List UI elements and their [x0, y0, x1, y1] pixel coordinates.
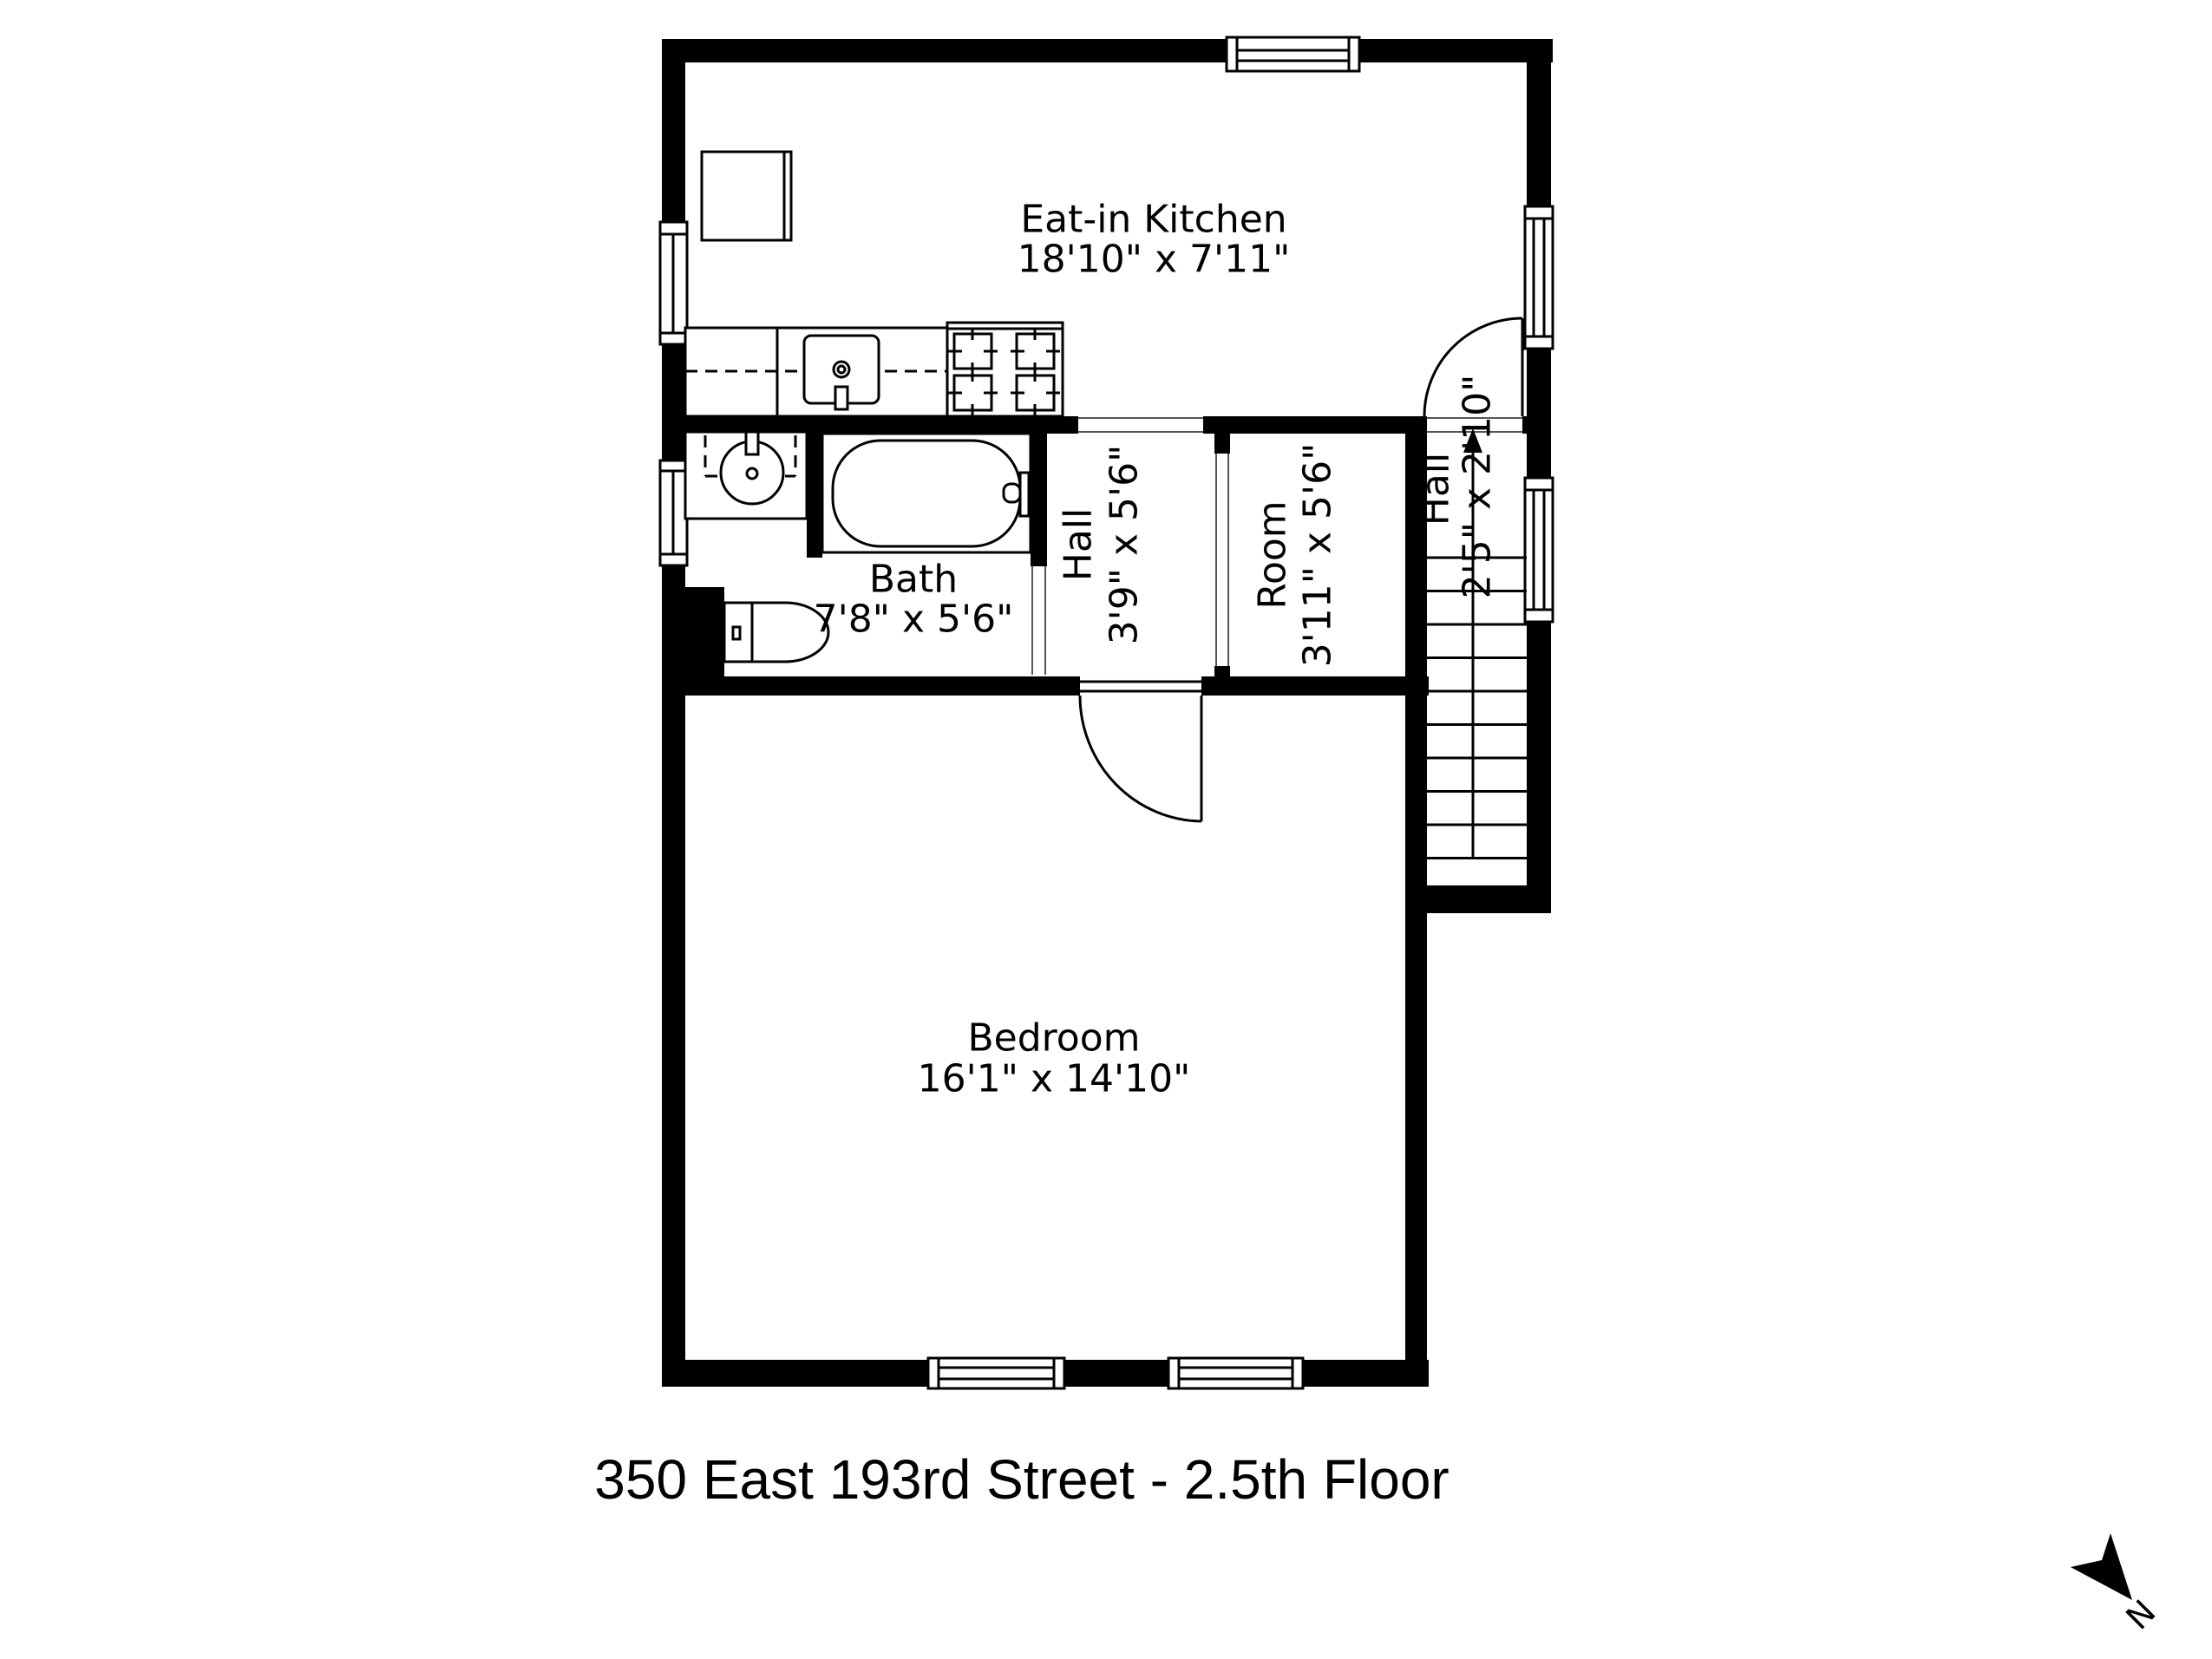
- entry-hall-name: Hall: [1414, 453, 1458, 526]
- window-kitchen-left: [660, 222, 687, 344]
- north-arrow: N: [2071, 1533, 2163, 1637]
- label-bath: Bath 7'8" x 5'6": [814, 558, 1014, 642]
- hall-dims: 3'9" x 5'6": [1103, 445, 1147, 645]
- kitchen-dims: 18'10" x 7'11": [1018, 238, 1291, 282]
- kitchen-fixtures: [685, 152, 1063, 416]
- floor-plan-title: 350 East 193rd Street - 2.5th Floor: [594, 1448, 1449, 1511]
- room-name: Room: [1251, 500, 1295, 609]
- bathtub: [822, 434, 1031, 552]
- refrigerator: [702, 152, 791, 240]
- north-arrow-icon: [2071, 1533, 2132, 1600]
- label-bedroom: Bedroom 16'1" x 14'10": [918, 1016, 1191, 1101]
- bedroom-name: Bedroom: [967, 1016, 1140, 1061]
- bath-name: Bath: [869, 558, 958, 602]
- kitchen-name: Eat-in Kitchen: [1020, 198, 1286, 242]
- window-kitchen-right: [1525, 206, 1553, 349]
- bedroom-dims: 16'1" x 14'10": [918, 1057, 1191, 1101]
- label-hall: Hall 3'9" x 5'6": [1057, 445, 1147, 645]
- stove: [947, 323, 1063, 416]
- entry-hall-dims: 2'5" x 2'10": [1456, 375, 1500, 599]
- window-stair-right: [1525, 478, 1553, 622]
- room-dims: 3'11" x 5'6": [1296, 443, 1340, 668]
- window-kitchen-top: [1227, 37, 1359, 71]
- kitchen-sink: [804, 336, 879, 409]
- bedroom-door: [1080, 696, 1201, 821]
- window-bedroom-left: [928, 1358, 1064, 1388]
- label-room: Room 3'11" x 5'6": [1251, 443, 1340, 668]
- window-bath-left: [660, 460, 687, 565]
- floor-plan-page: Eat-in Kitchen 18'10" x 7'11" Bath 7'8" …: [0, 0, 2212, 1659]
- hall-name: Hall: [1057, 508, 1101, 582]
- bathroom-sink: [685, 432, 807, 519]
- label-kitchen: Eat-in Kitchen 18'10" x 7'11": [1018, 198, 1291, 282]
- window-bedroom-right: [1168, 1358, 1303, 1388]
- north-label: N: [2118, 1592, 2163, 1636]
- bath-dims: 7'8" x 5'6": [814, 598, 1014, 642]
